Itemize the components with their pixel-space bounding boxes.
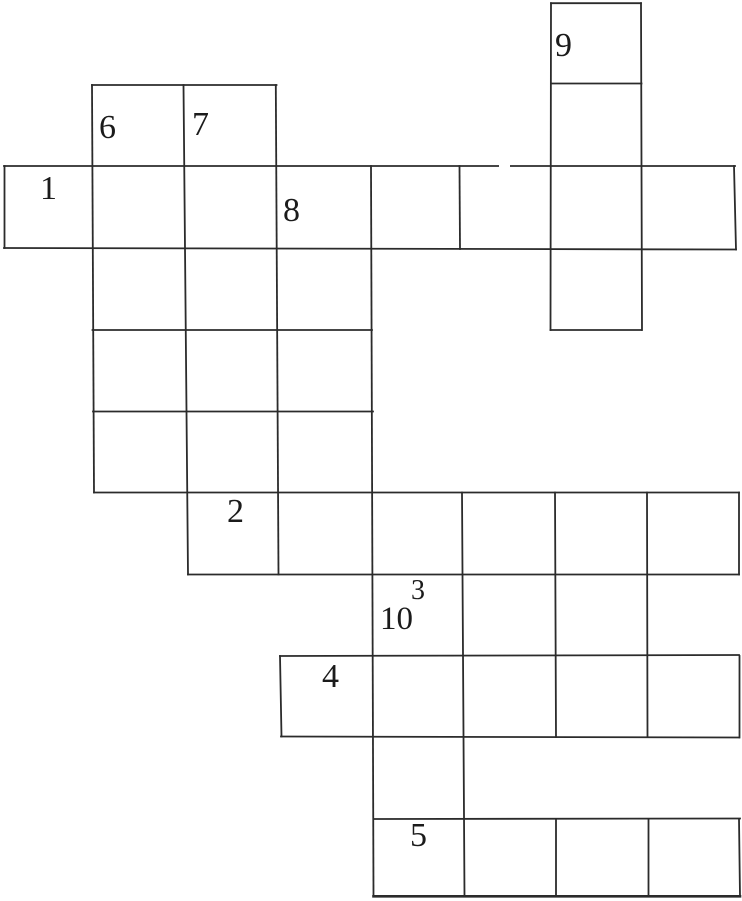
svg-text:2: 2 xyxy=(227,493,244,530)
svg-text:9: 9 xyxy=(555,27,572,64)
svg-text:4: 4 xyxy=(322,658,339,695)
svg-text:6: 6 xyxy=(99,109,116,146)
svg-text:10: 10 xyxy=(380,601,413,637)
svg-text:8: 8 xyxy=(283,192,300,229)
svg-text:5: 5 xyxy=(410,817,427,854)
svg-text:7: 7 xyxy=(192,106,209,143)
svg-text:1: 1 xyxy=(40,170,57,207)
svg-text:3: 3 xyxy=(411,575,425,606)
